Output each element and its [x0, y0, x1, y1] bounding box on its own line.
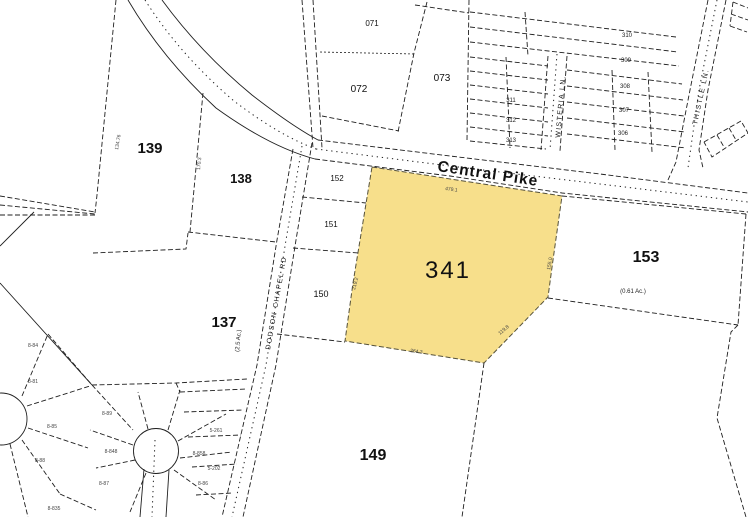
lot-number: 308 [620, 84, 631, 90]
left-cul-de-sac-bulb [0, 393, 27, 445]
parcel-map-canvas[interactable]: Central Pike DODSON CHAPEL RD WISTERIA L… [0, 0, 748, 517]
sublot-label: 8-85 [47, 424, 57, 430]
boundary-line [414, 2, 427, 53]
boundary-line [92, 379, 247, 385]
sublot-label: 8-858 [193, 451, 206, 457]
parcel-138-label: 138 [230, 171, 252, 186]
boundary-line [176, 383, 180, 392]
sublot-label: 8-87 [99, 481, 109, 487]
lot-number: 313 [506, 138, 517, 144]
boundary-line [704, 121, 748, 157]
dimension-text: 155.0 [546, 257, 554, 271]
lot-number: 306 [618, 131, 629, 137]
parcel-153-acreage: (0.61 Ac.) [620, 289, 646, 295]
central-pike-curve-centerline [145, 0, 316, 149]
parcel-073-label: 073 [434, 73, 451, 84]
boundary-line [470, 71, 548, 80]
boundary-line [48, 334, 92, 385]
boundary-line [180, 452, 232, 458]
lot-number: 311 [506, 98, 516, 104]
boundary-line [93, 233, 188, 253]
thistle-ln-label: THISTLE LN. [692, 68, 711, 125]
boundary-line [0, 212, 34, 246]
boundary-line [470, 42, 679, 66]
dimension-text: 134.76 [114, 134, 123, 150]
boundary-line [27, 386, 90, 406]
boundary-line [302, 197, 366, 203]
boundary-line [470, 27, 678, 52]
boundary-line [313, 0, 322, 148]
boundary-line [10, 444, 28, 517]
boundary-line [188, 435, 241, 437]
boundary-line [0, 283, 92, 385]
boundary-line [174, 470, 216, 500]
parcel-149-label: 149 [360, 447, 387, 464]
boundary-line [90, 430, 133, 445]
boundary-line [293, 248, 358, 253]
boundary-line [0, 205, 95, 214]
boundary-line [567, 118, 685, 132]
boundary-line [470, 57, 548, 66]
sublot-label: 8-86 [198, 481, 208, 487]
central-pike-curve-inner-edge [162, 0, 318, 140]
dimension-text: 264.3 [410, 348, 423, 356]
cul-de-sac-west-edge [140, 469, 144, 517]
dodson-chapel-east-edge [243, 143, 312, 517]
boundary-line [717, 325, 746, 517]
parcel-152-label: 152 [330, 174, 344, 183]
lot-number: 312 [506, 118, 517, 124]
boundary-line [562, 196, 746, 214]
boundary-line [567, 70, 682, 84]
boundary-line [729, 128, 736, 140]
central-pike-curve-outer-edge [128, 0, 315, 159]
parcel-150-label: 150 [313, 289, 328, 299]
sublot-label: 8-835 [48, 506, 61, 512]
parcel-071-label: 071 [365, 19, 379, 28]
parcel-151-label: 151 [324, 220, 338, 229]
boundary-line [730, 26, 747, 32]
parcel-072-label: 072 [351, 84, 368, 95]
sublot-label: 8-84 [28, 343, 38, 349]
cul-de-sac-bulb [134, 429, 179, 474]
lot-number: 309 [621, 58, 632, 64]
boundary-line [22, 440, 60, 494]
cul-de-sac-centerline [152, 440, 155, 517]
boundary-line [180, 389, 246, 392]
boundary-line [731, 14, 748, 20]
dimension-text: 170.3 [196, 157, 203, 170]
parcel-137-acreage: (2.5 Ac.) [235, 329, 243, 352]
boundary-line [168, 390, 180, 430]
boundary-line [612, 70, 615, 150]
dodson-chapel-rd-label: DODSON CHAPEL RD [265, 256, 288, 351]
parcel-137-label: 137 [211, 314, 236, 331]
wisteria-ln-label: WISTERIA LN. [555, 75, 567, 138]
parcel-153-label: 153 [633, 249, 660, 266]
parcel-341-label: 341 [425, 257, 471, 284]
boundary-line [196, 493, 233, 495]
boundary-line [60, 494, 96, 510]
boundary-line [470, 85, 548, 94]
sublot-label: 8-88 [35, 458, 45, 464]
sublot-label: 8-848 [105, 449, 118, 455]
boundary-line [470, 12, 676, 37]
boundary-line [467, 0, 469, 140]
cul-de-sac-east-edge [166, 470, 169, 517]
boundary-line [92, 385, 133, 430]
boundary-line [188, 232, 276, 242]
boundary-line [277, 334, 345, 342]
boundary-line [733, 2, 748, 8]
boundary-line [738, 214, 746, 325]
sublot-label: 5-261 [210, 428, 223, 434]
boundary-line [730, 2, 733, 26]
boundary-line [320, 52, 415, 54]
boundary-line [717, 135, 724, 147]
sublot-label: 5-202 [208, 466, 221, 472]
boundary-line [95, 0, 116, 213]
boundary-line [28, 428, 88, 448]
dodson-chapel-west-edge [222, 149, 293, 517]
sublot-label: 8-89 [102, 411, 112, 417]
boundary-line [138, 392, 148, 429]
boundary-line [96, 460, 135, 468]
lot-number: 307 [619, 108, 630, 114]
boundary-line [462, 363, 484, 517]
boundary-line [548, 298, 738, 325]
boundary-line [302, 0, 313, 148]
boundary-line [184, 410, 244, 412]
sublot-label: 8-81 [28, 379, 38, 385]
boundary-line [322, 116, 399, 131]
boundary-line [398, 53, 414, 132]
boundary-line [415, 5, 469, 13]
parcel-139-label: 139 [137, 140, 162, 157]
lot-number: 310 [622, 33, 633, 39]
